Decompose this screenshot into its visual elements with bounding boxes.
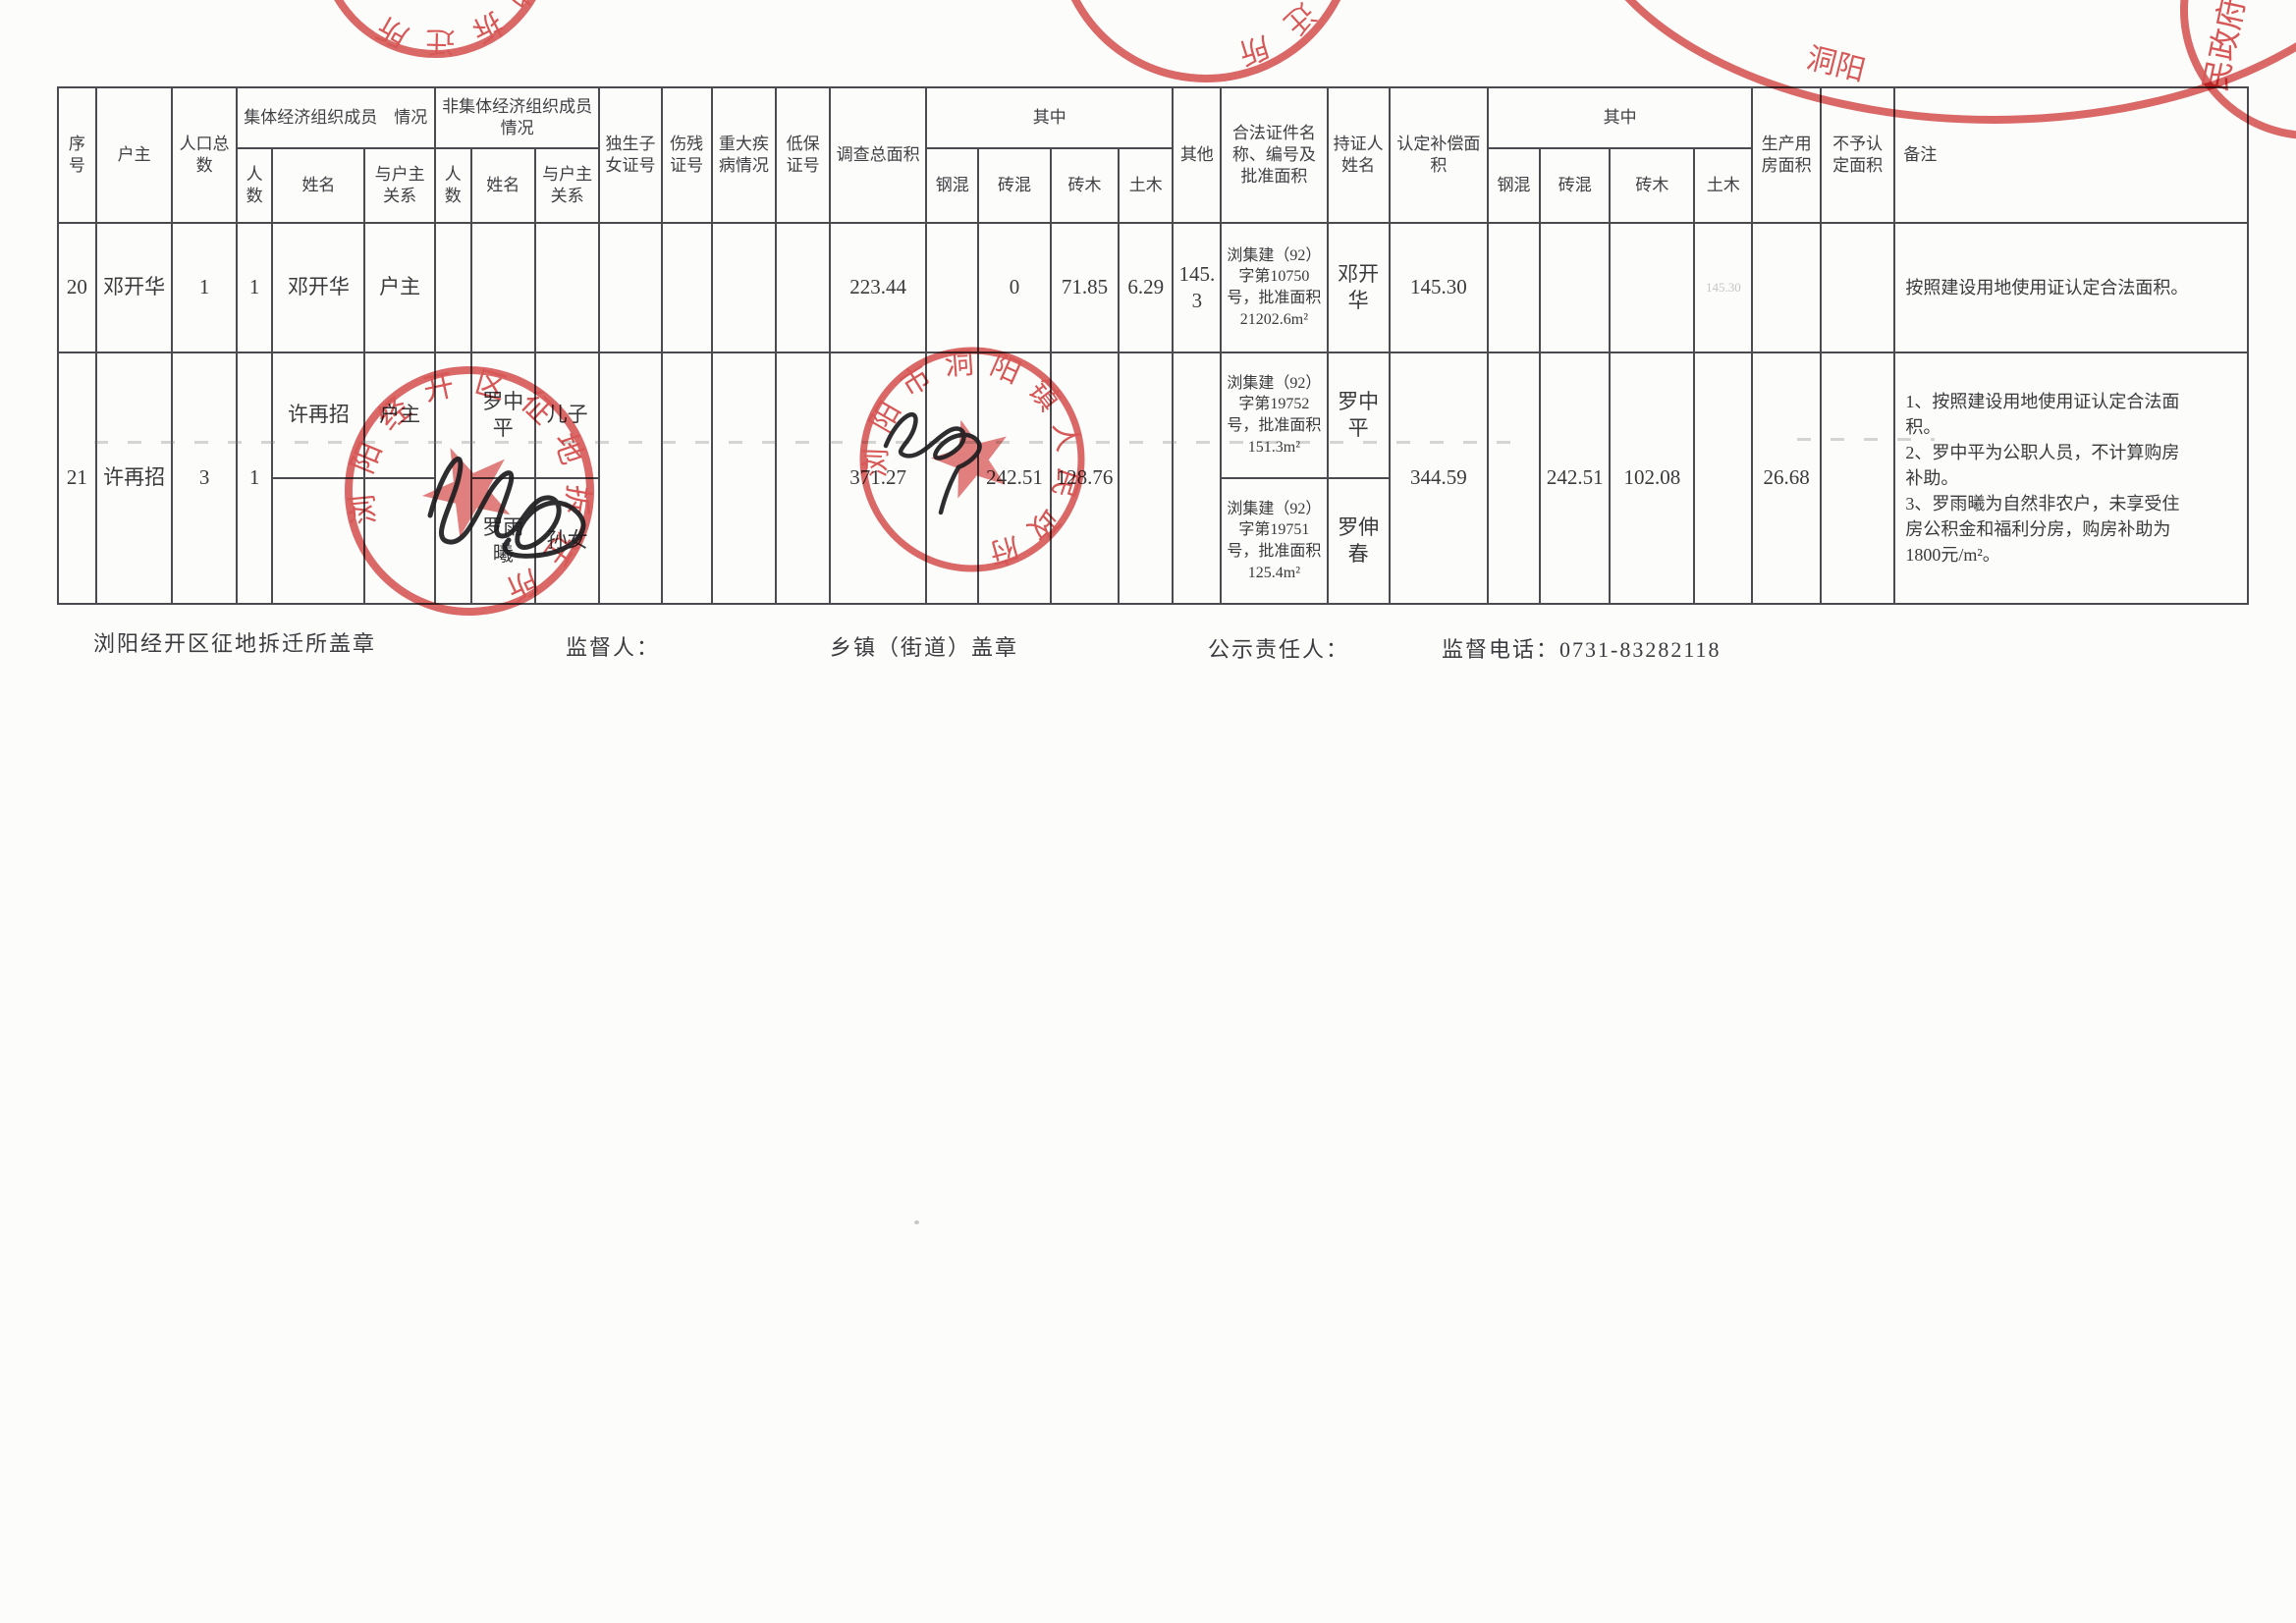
col-header-survey-total-area: 调查总面积 [830, 87, 926, 223]
cell-r20-excluded-area [1821, 223, 1895, 352]
top-center-partial-stamp: 浏阳经开区征地拆迁所 [288, 0, 582, 88]
svg-text:浏阳经开区征地拆迁所: 浏阳经开区征地拆迁所 [288, 0, 582, 88]
cell-r20-collective-name: 邓开华 [272, 223, 364, 352]
cell-r20-approved-brick-concrete [1540, 223, 1610, 352]
col-group-collective-members: 集体经济组织成员 情况 [237, 87, 435, 148]
col-header-population-total: 人口总数 [172, 87, 236, 223]
cell-r20-collective-count: 1 [237, 223, 273, 352]
col-header-cert-holder: 持证人姓名 [1328, 87, 1390, 223]
col-header-noncollective-name: 姓名 [471, 148, 535, 223]
cell-r21-excluded-area [1821, 352, 1895, 604]
cell-r21-seq: 21 [58, 352, 96, 604]
hotline-number: 0731-83282118 [1559, 637, 1722, 662]
col-header-approved-earth-wood: 土木 [1694, 148, 1752, 223]
cell-r21-disability-cert [662, 352, 712, 604]
scan-artifact-line [94, 441, 1528, 444]
stamp-fragment-text: 洞阳 [1803, 42, 1868, 88]
handwritten-signature-large [401, 422, 617, 569]
cell-r20-production-area [1752, 223, 1820, 352]
stamp-ring-text: 浏阳经开区征地拆迁所 [288, 0, 582, 88]
footer-township-seal-label: 乡镇（街道）盖章 [830, 630, 1018, 662]
cell-r20-approved-steel-concrete [1488, 223, 1540, 352]
cell-r20-only-child-cert [599, 223, 661, 352]
handwritten-signature-small [872, 391, 1010, 528]
cell-r21-approved-steel-concrete [1488, 352, 1540, 604]
col-header-approved-brick-concrete: 砖混 [1540, 148, 1610, 223]
cell-r21-population: 3 [172, 352, 236, 604]
col-header-survey-brick-concrete: 砖混 [978, 148, 1051, 223]
col-header-noncollective-count: 人数 [435, 148, 471, 223]
cell-r21-survey-other [1173, 352, 1221, 604]
cell-r21-remark: 1、按照建设用地使用证认定合法面 积。 2、罗中平为公职人员，不计算购房 补助。… [1894, 352, 2248, 604]
cell-r21-approved-total: 344.59 [1390, 352, 1488, 604]
cell-r20-survey-earth-wood: 6.29 [1119, 223, 1173, 352]
cell-r20-head: 邓开华 [96, 223, 173, 352]
cell-r21-head: 许再招 [96, 352, 173, 604]
col-group-survey-including: 其中 [926, 87, 1173, 148]
cell-r21s1-legal-cert: 浏集建（92）字第19752号，批准面积151.3m² [1221, 352, 1327, 478]
cell-r20-approved-total: 145.30 [1390, 223, 1488, 352]
cell-r20-holder: 邓开华 [1328, 223, 1390, 352]
cell-r20-seq: 20 [58, 223, 96, 352]
cell-r20-approved-earth-wood: 145.30 [1694, 223, 1752, 352]
cell-r20-collective-relation: 户主 [364, 223, 434, 352]
cell-r20-noncollective-count [435, 223, 471, 352]
col-header-disability-cert: 伤残证号 [662, 87, 712, 223]
cell-r21-approved-brick-concrete: 242.51 [1540, 352, 1610, 604]
col-header-collective-relation: 与户主关系 [364, 148, 434, 223]
col-header-subsistence-cert: 低保证号 [776, 87, 830, 223]
col-header-legal-cert: 合法证件名称、编号及批准面积 [1221, 87, 1327, 223]
cell-r21-survey-earth-wood [1119, 352, 1173, 604]
cell-r20-noncollective-name [471, 223, 535, 352]
col-header-collective-name: 姓名 [272, 148, 364, 223]
cell-r20-subsistence-cert [776, 223, 830, 352]
col-header-approved-comp-area: 认定补偿面积 [1390, 87, 1488, 223]
col-header-seq: 序号 [58, 87, 96, 223]
col-header-only-child-cert: 独生子女证号 [599, 87, 661, 223]
cell-r21-major-illness [712, 352, 776, 604]
col-header-survey-brick-wood: 砖木 [1051, 148, 1119, 223]
cell-r20-disability-cert [662, 223, 712, 352]
cell-r21-subsistence-cert [776, 352, 830, 604]
top-right-partial-stamp: 浏阳经开区征地拆迁所 [1049, 0, 1363, 88]
table-row-20: 20 邓开华 1 1 邓开华 户主 223.44 0 71.85 6.29 14… [58, 223, 2248, 352]
footer-hotline-label: 监督电话：0731-83282118 [1442, 632, 1722, 664]
col-header-survey-earth-wood: 土木 [1119, 148, 1173, 223]
cell-r21s2-legal-cert: 浏集建（92）字第19751号，批准面积125.4m² [1221, 478, 1327, 604]
cell-r21-production-area: 26.68 [1752, 352, 1820, 604]
cell-r21s1-holder: 罗中平 [1328, 352, 1390, 478]
col-header-other: 其他 [1173, 87, 1221, 223]
col-header-major-illness: 重大疾病情况 [712, 87, 776, 223]
cell-r20-approved-brick-wood [1610, 223, 1694, 352]
corner-partial-stamp: 民政府 [2172, 0, 2296, 147]
scan-speck [914, 1220, 919, 1224]
scanned-demolition-compensation-sheet: 序号 户主 人口总数 集体经济组织成员 情况 非集体经济组织成员 情况 独生子女… [0, 0, 2296, 1623]
cell-r20-survey-other: 145.3 [1173, 223, 1221, 352]
cell-r21-approved-earth-wood [1694, 352, 1752, 604]
col-header-noncollective-relation: 与户主关系 [535, 148, 599, 223]
stamp-fragment-text: 民政府 [2197, 0, 2251, 94]
cell-r20-noncollective-relation [535, 223, 599, 352]
cell-r21s2-holder: 罗伸春 [1328, 478, 1390, 604]
scan-artifact-line-short [1797, 438, 1935, 441]
cell-r21-approved-brick-wood: 102.08 [1610, 352, 1694, 604]
col-header-approved-steel-concrete: 钢混 [1488, 148, 1540, 223]
cell-r21-collective-count: 1 [237, 352, 273, 604]
col-header-approved-brick-wood: 砖木 [1610, 148, 1694, 223]
col-header-collective-count: 人数 [237, 148, 273, 223]
col-header-survey-steel-concrete: 钢混 [926, 148, 978, 223]
cell-r20-remark: 按照建设用地使用证认定合法面积。 [1894, 223, 2248, 352]
cell-r20-population: 1 [172, 223, 236, 352]
col-header-household-head: 户主 [96, 87, 173, 223]
cell-r20-legal-cert: 浏集建（92）字第10750号，批准面积21202.6m² [1221, 223, 1327, 352]
hotline-label: 监督电话： [1442, 637, 1559, 662]
footer-publicity-person-label: 公示责任人： [1208, 632, 1349, 664]
cell-r20-major-illness [712, 223, 776, 352]
col-group-non-collective-members: 非集体经济组织成员 情况 [435, 87, 599, 148]
